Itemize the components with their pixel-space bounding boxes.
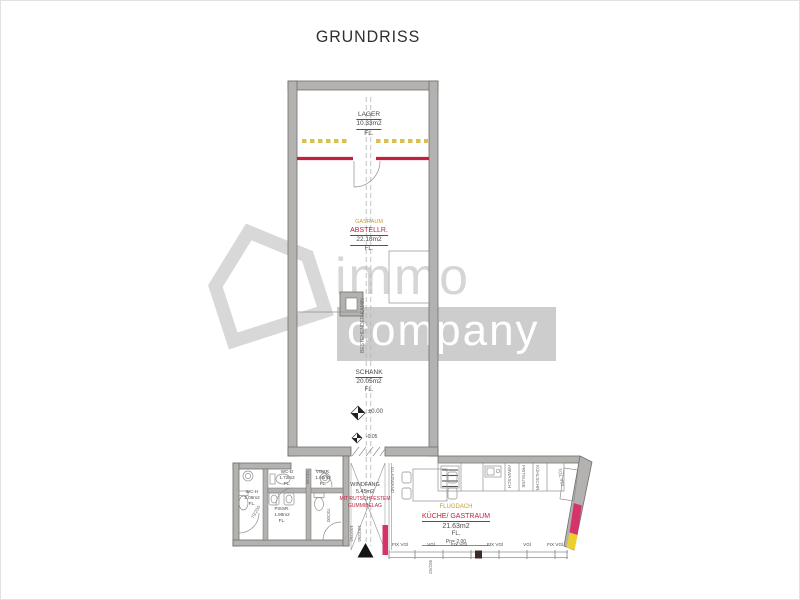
entrance-door-size-1: 100/250 [349,525,354,542]
room-label-pissoir: PISSR. 1.98m2 FL. [274,506,289,524]
floor-note-1: MIT RUTSCHFESTEM [339,496,390,503]
kitchen-item-label: FRITEUSE [521,465,526,488]
room-label-windfang: WINDFANG 5.45m2 MIT RUTSCHFESTEM GUMMIBE… [339,482,390,509]
room-floor: FL. [355,387,382,395]
room-area: 21.63m2 [422,522,490,531]
room-name: ABSTELLR. [350,226,388,236]
room-area: 10.33m2 [356,120,381,129]
floor-note-2: GUMMIBELAG [339,503,390,510]
glass-wall-label: GLASWAND [390,467,395,493]
room-label-vorraum: VORR. 1.60m2 FL. [315,469,330,487]
room-label-kueche-gastraum: FLUGDACH KÜCHE/ GASTRAUM 21.63m2 FL. Pn=… [422,504,490,546]
window-label: FIX VGl [451,542,467,548]
level-label-main: ±0.00 [368,409,383,417]
room-name: LAGER [356,111,381,120]
window-label: FIX VGl [487,542,503,548]
window-label: VGl [427,542,435,548]
room-old-name: FLUGDACH [422,504,490,512]
kitchen-item-label: KÜHLSCHR. [535,465,540,492]
window-label: VGl [523,542,531,548]
floorplan-drawing [1,1,800,600]
level-label-entrance: -0.05 [366,434,377,441]
window-label: FIX VGl [547,542,563,548]
room-name: KÜCHE/ GASTRAUM [422,512,490,522]
section-dashed-line [366,97,371,546]
dining-table [402,469,457,501]
room-name: WINDFANG [339,482,390,489]
room-name: SCHANK [355,369,382,378]
window-label: FIX VGl [392,542,408,548]
level-marker-entrance [352,433,362,443]
room-floor: FL. [274,518,289,524]
door-size-wc-b: 70/200 [326,508,331,522]
floorplan-page: GRUNDRISS immo company [0,0,800,600]
room-label-schank: SCHANK 20.05m2 FL. [355,369,382,395]
room-floor: FL. [315,481,330,487]
door-size-wc-d: 70/190 [305,470,310,484]
section-line-label: BESTEHENDER KAMIN [360,298,366,353]
entrance-door-size-2: 100/250 [357,525,362,542]
room-floor: FL. [422,531,490,539]
level-marker-main [351,406,365,420]
room-label-lager: LAGER 10.33m2 FL. [356,111,381,138]
room-floor: FL. [279,481,294,487]
room-old-name: GASRAUM [350,219,388,226]
kitchen-item-label: ABWASCH [507,465,512,488]
window-size-label: 25/205 [428,560,433,574]
room-area: 22.18m2 [350,236,388,245]
room-label-wc-d: WC-D 1.72m2 FL. [279,469,294,487]
room-floor: FL. [356,130,381,138]
room-area: 5.45m2 [339,489,390,496]
room-label-abstellraum: GASRAUM ABSTELLR. 22.18m2 FL. [350,219,388,253]
room-floor: FL. [350,246,388,254]
room-area: 20.05m2 [355,378,382,386]
